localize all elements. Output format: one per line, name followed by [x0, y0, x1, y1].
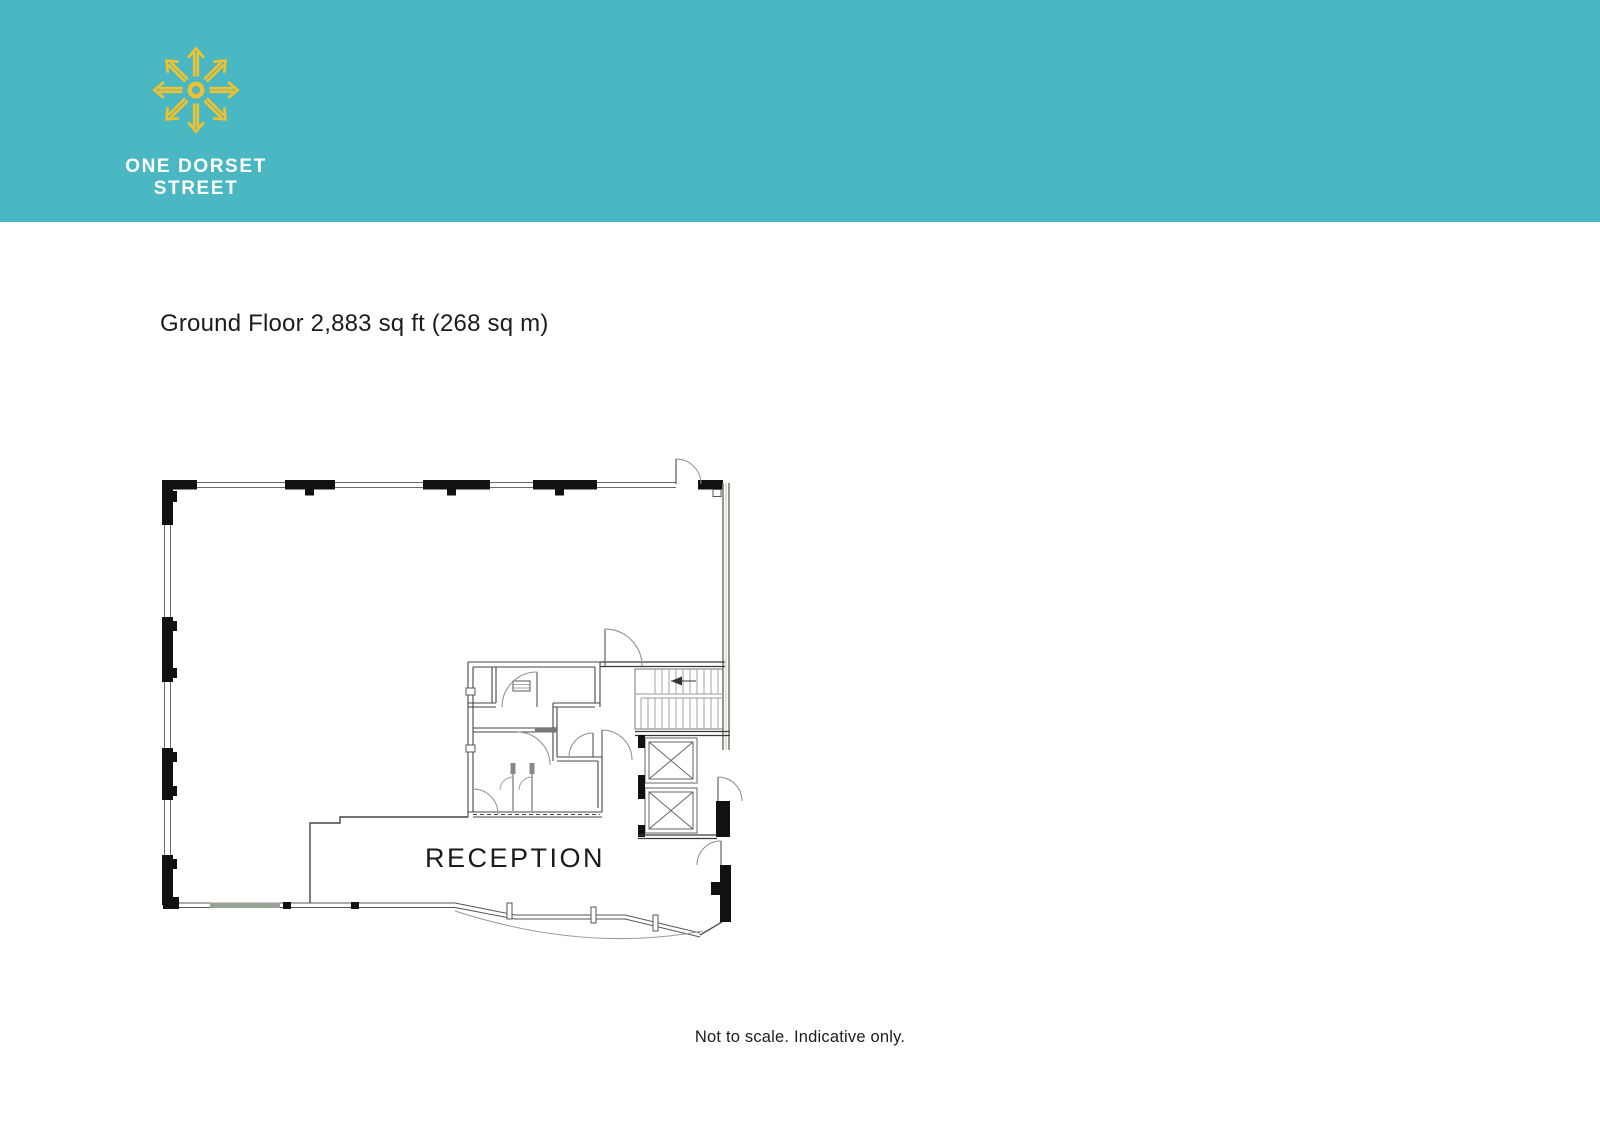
wc-fixture [513, 681, 530, 691]
bottom-wall [163, 897, 722, 939]
disclaimer-note: Not to scale. Indicative only. [0, 1028, 1600, 1047]
floor-plan: RECEPTION [155, 445, 755, 955]
top-wall [163, 459, 723, 497]
brand-name: ONE DORSETSTREET [125, 156, 267, 200]
corridor-door-south [602, 730, 632, 760]
wc-cubicles [500, 763, 535, 811]
staircase [635, 669, 730, 736]
header-band: ONE DORSETSTREET [0, 0, 1600, 222]
left-wall [162, 480, 177, 905]
wc-doors [473, 672, 593, 814]
right-entrance [697, 777, 742, 922]
compass-starburst-icon [144, 38, 248, 142]
elevator-piers [638, 735, 645, 837]
page-title: Ground Floor 2,883 sq ft (268 sq m) [160, 310, 549, 338]
corridor-wall [600, 629, 725, 667]
elevator-shafts [645, 738, 697, 833]
brand-line2: STREET [154, 178, 239, 199]
brand: ONE DORSETSTREET [96, 38, 296, 200]
room-label-reception: RECEPTION [425, 843, 605, 873]
brand-line1: ONE DORSET [125, 156, 267, 177]
right-wall [723, 483, 729, 750]
brochure-page: ONE DORSETSTREET Ground Floor 2,883 sq f… [0, 0, 1600, 1132]
entrance-door-top [676, 459, 701, 484]
floor-plan-drawing: RECEPTION [155, 445, 755, 955]
stair-direction-arrow [671, 677, 682, 686]
